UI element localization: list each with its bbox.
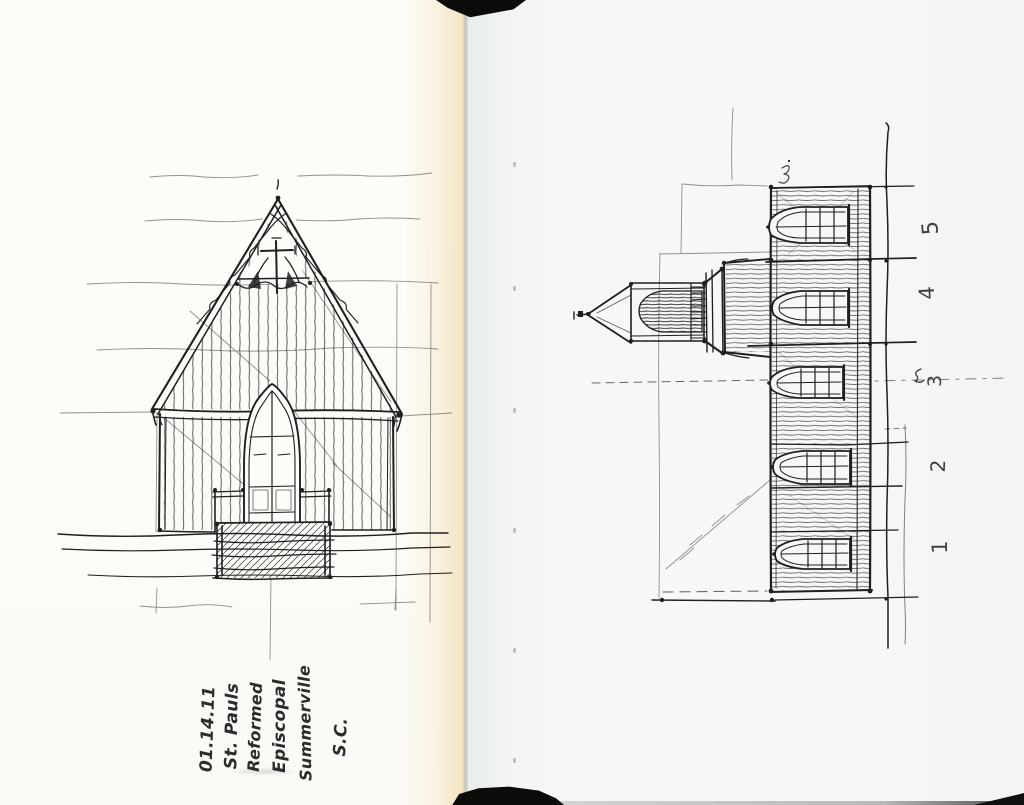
bay-number-3: 3 <box>924 375 946 387</box>
caption-line-city: Summerville <box>294 665 315 781</box>
stitch-mark <box>513 286 516 291</box>
front-elevation-sketch <box>40 140 460 680</box>
bay-number-2: 2 <box>926 459 950 473</box>
caption-line-date: 01.14.11 <box>197 686 220 773</box>
caption-line-episcopal: Episcopal <box>270 679 290 773</box>
stitch-mark <box>513 408 516 413</box>
ink-lines <box>574 123 924 648</box>
caption-line-reformed: Reformed <box>244 682 266 772</box>
side-elevation-sketch <box>560 95 1020 665</box>
scribble-mark <box>779 166 789 183</box>
stitch-mark <box>513 162 516 167</box>
scan-edge-strip <box>558 801 1024 805</box>
caption-line-state: S.C. <box>330 717 352 757</box>
gutter-crease <box>463 0 468 805</box>
sketchbook-scan: 01.14.11 St. Pauls Reformed Episcopal Su… <box>0 0 1024 805</box>
stitch-mark <box>513 758 516 763</box>
stitch-mark <box>513 648 516 653</box>
stitch-mark <box>513 528 516 533</box>
bay-number-1: 1 <box>928 540 952 553</box>
bay-number-5: 5 <box>918 220 944 236</box>
caption-line-church: St. Pauls <box>221 683 243 770</box>
bay-number-4: 4 <box>915 286 940 301</box>
